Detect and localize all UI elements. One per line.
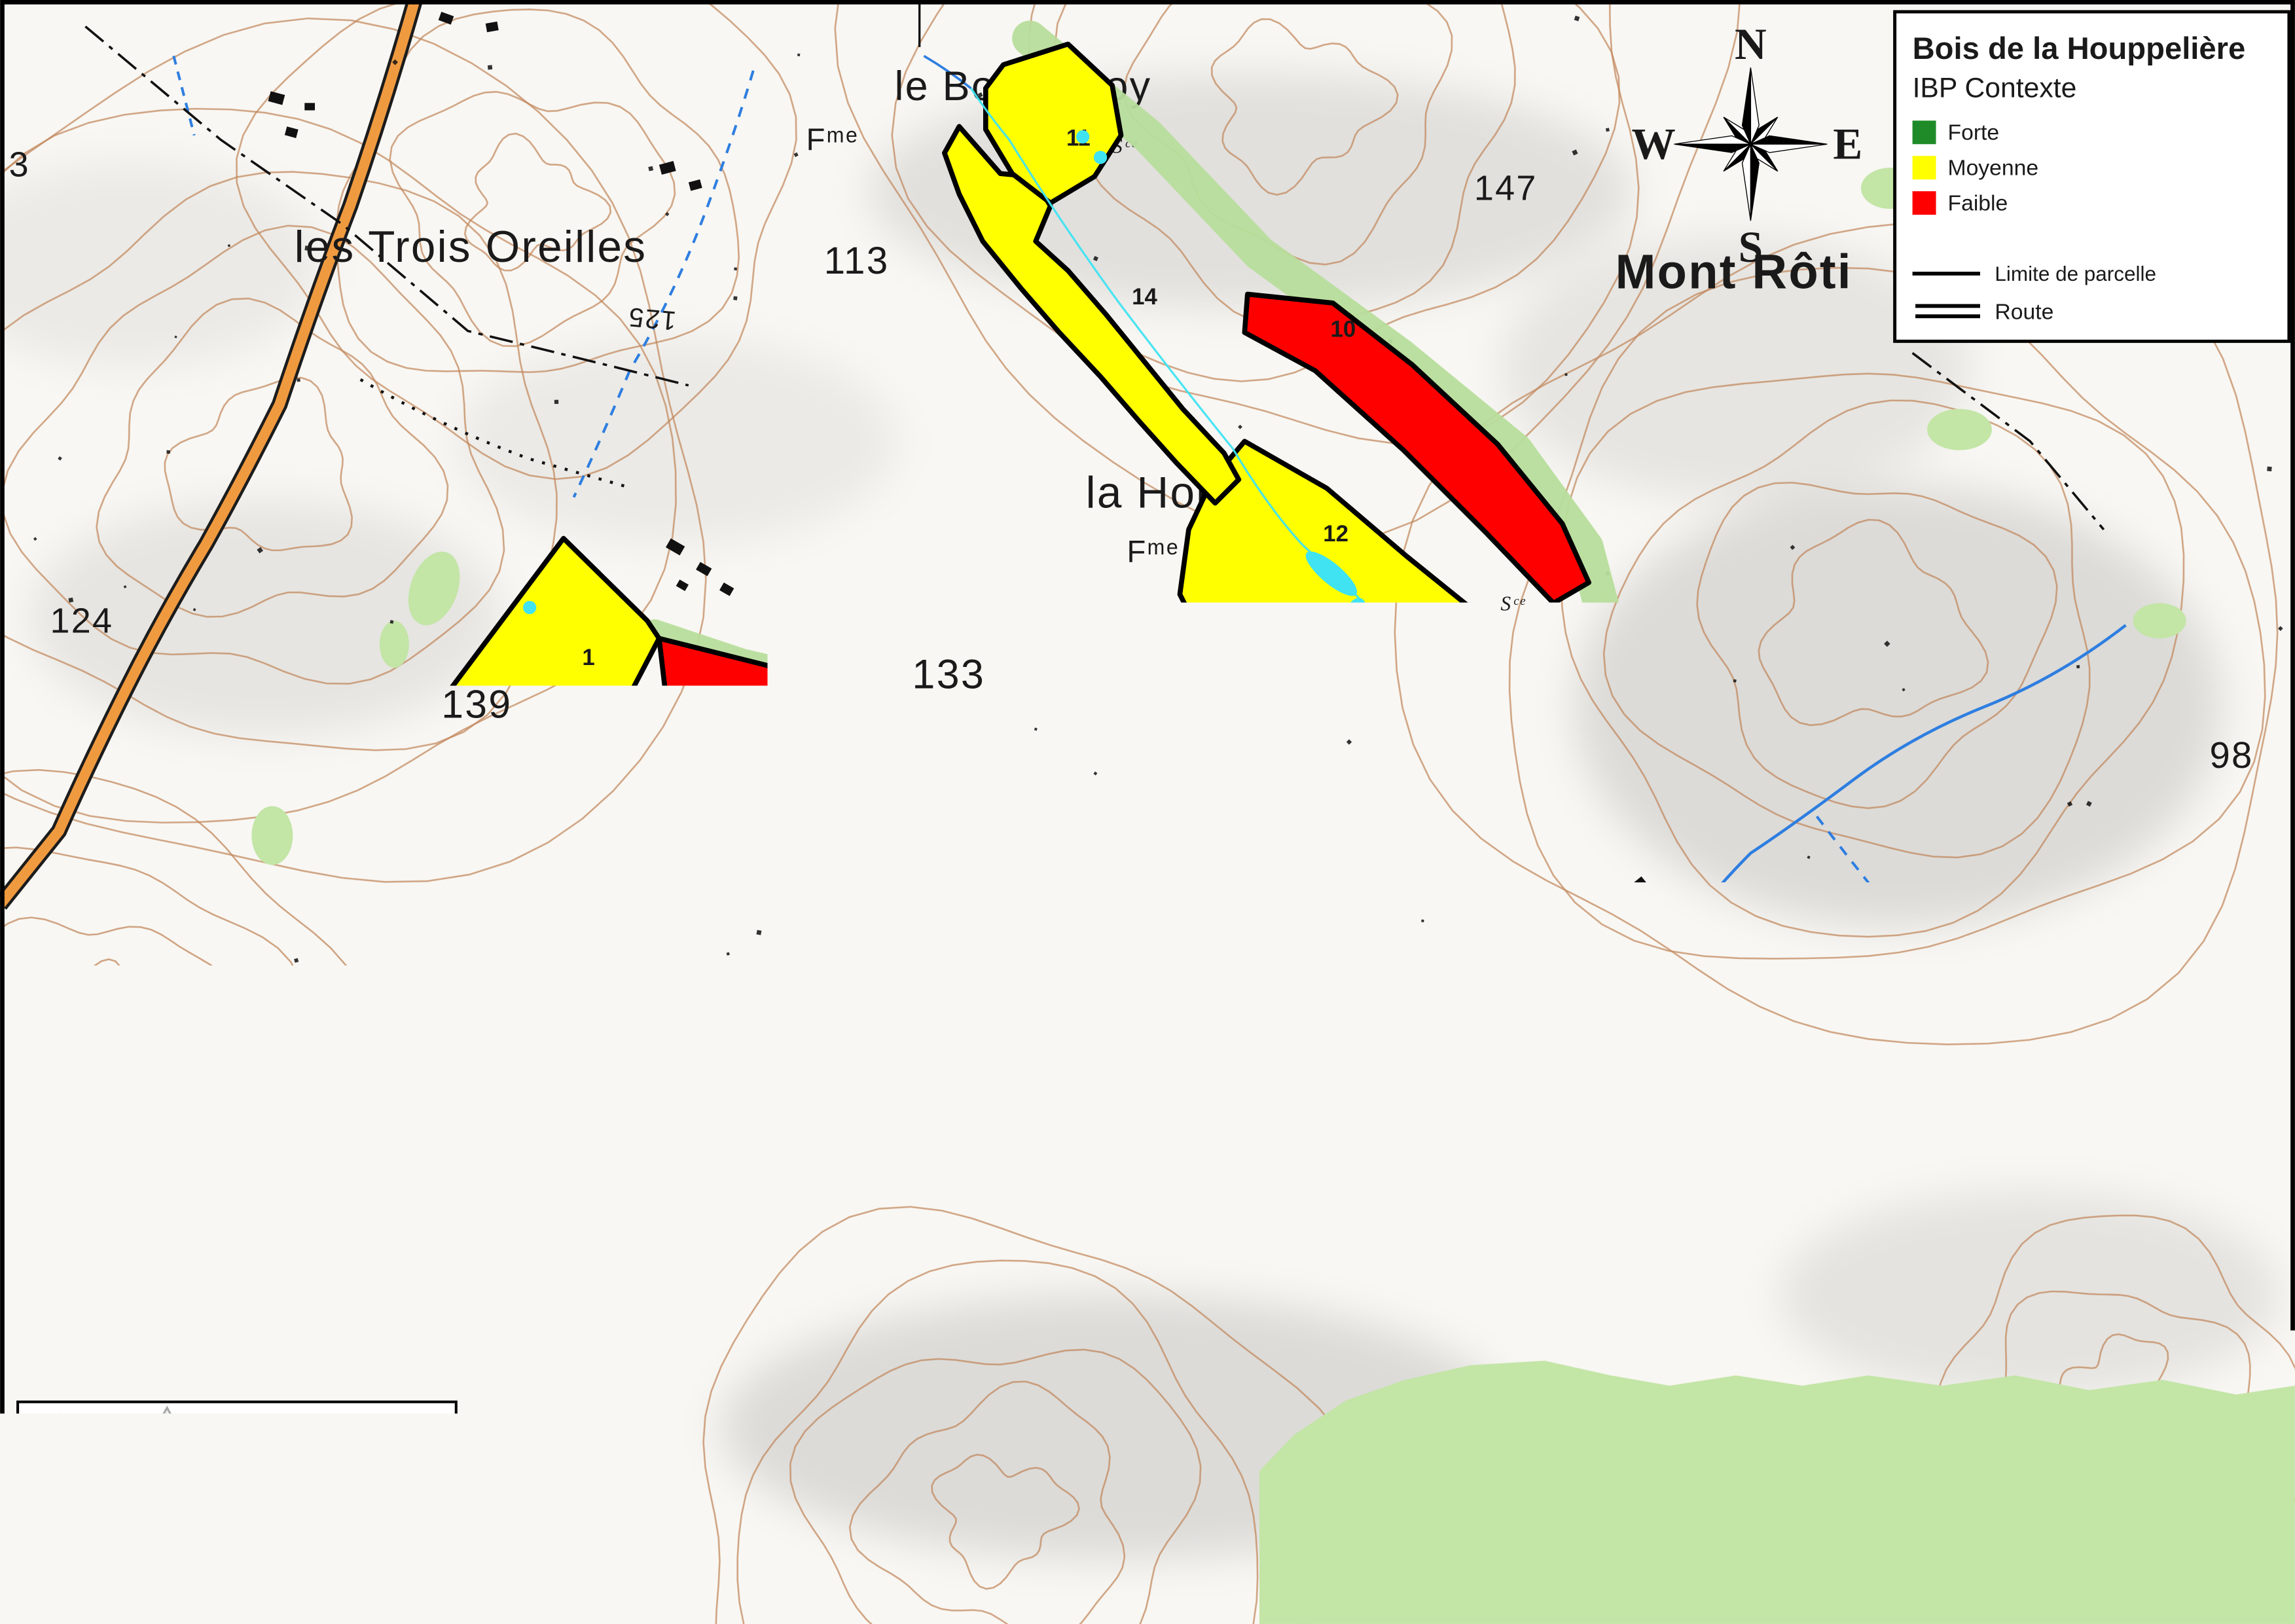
scale-bar-segment (1636, 1489, 1701, 1507)
scale-ratio: Échelle : 1:11 150 (1746, 1577, 2049, 1619)
parcel-label-17: 17 (1367, 1077, 1393, 1102)
legend-label-moyenne: Moyenne (1948, 155, 2039, 180)
legend-swatch-faible (1913, 191, 1936, 215)
parcel-label-34: 34 (1314, 765, 1340, 791)
topo-dot (648, 166, 653, 171)
parcel-label-6: 6 (1314, 1217, 1327, 1242)
place-label: les Trois Oreilles (295, 223, 647, 272)
parcel-label-33: 33 (1123, 802, 1149, 827)
parcel-label-37: 37 (692, 1071, 717, 1096)
building (278, 1333, 293, 1343)
building (221, 1268, 232, 1276)
place-label: 106 (1630, 1264, 1695, 1305)
place-label: Sᶜᵉ (1879, 935, 1904, 958)
building (88, 1230, 103, 1240)
legend-title: Bois de la Houppelière (1913, 31, 2246, 66)
parcel-label-16: 16 (774, 874, 800, 899)
topo-dot (1606, 128, 1610, 132)
building (185, 1244, 200, 1256)
scale-bar-segment (1636, 1507, 1701, 1526)
parcel-label-29: 29 (979, 693, 1004, 719)
parcel-label-20: 20 (752, 684, 778, 710)
topo-dot (488, 65, 492, 69)
parcel-label-5: 5 (1294, 1182, 1307, 1207)
scale-bar-segment (1898, 1507, 2159, 1526)
parcel-label-36: 36 (1279, 915, 1305, 941)
place-label: 3 (9, 145, 30, 185)
building (103, 1324, 115, 1333)
topo-dot (554, 400, 558, 404)
place-label: Fᵐᵉ (806, 122, 859, 157)
legend-swatch-forte (1913, 120, 1936, 144)
topo-dot (297, 378, 300, 382)
place-label: Fᵐᵉ (1127, 534, 1180, 569)
parcel-label-8: 8 (1344, 1259, 1356, 1285)
place-label: 113 (824, 240, 890, 282)
scale-bar-segment (1898, 1489, 2159, 1507)
small-pond (476, 842, 489, 856)
parcel-label-14: 14 (1132, 284, 1157, 310)
legend-subtitle: IBP Contexte (1913, 72, 2077, 103)
place-label: 108 (827, 1390, 892, 1432)
topo-dot (1231, 1425, 1234, 1428)
parcel-label-1: 1 (582, 645, 594, 670)
small-pond (1076, 130, 1089, 143)
legend-label-route: Route (1995, 300, 2053, 325)
scale-left-value: 0 (1627, 1438, 1650, 1483)
scale-unit: kilomètres (1811, 1534, 1985, 1577)
scale-bar-segment (1701, 1489, 1767, 1507)
place-label: Mont Rôti (1616, 244, 1852, 298)
compass-n: N (1735, 20, 1767, 69)
map-canvas: les Trois Oreillesle Bois LeroyFᵐᵉ113la … (0, 0, 2295, 1624)
parcel-label-2: 2 (611, 923, 624, 948)
parcel-label-19: 19 (805, 805, 831, 831)
credits-edition: Edition : Mai 2013 (33, 1545, 204, 1568)
building (304, 103, 315, 110)
parcel-label-30: 30 (1320, 672, 1346, 698)
scale-bar-segment (1767, 1507, 1898, 1526)
legend-label-faible: Faible (1948, 190, 2008, 215)
building (1589, 1277, 1600, 1286)
legend-swatch-moyenne (1913, 156, 1936, 179)
topo-dot (2076, 665, 2080, 669)
topo-dot (734, 267, 737, 270)
parcel-label-4: 4 (1074, 1157, 1087, 1182)
small-pond (587, 739, 600, 752)
place-label: 123 (1295, 1559, 1360, 1600)
parcel-label-32: 32 (1035, 868, 1060, 893)
small-pond (905, 819, 918, 832)
place-label: 124 (50, 601, 114, 640)
building (191, 1315, 203, 1324)
topo-dot (1392, 1411, 1395, 1413)
credits-school: Collège et Lycée St. Joseph (206, 1478, 417, 1499)
topo-dot (2267, 467, 2271, 471)
compass-w: W (1631, 120, 1675, 169)
topo-dot (632, 1482, 635, 1485)
scale-bar-segment (1767, 1489, 1898, 1507)
parcel-label-18: 18 (664, 783, 689, 808)
parcel-label-10: 10 (1331, 317, 1356, 342)
credits-org: Mesnières-en-Bray (206, 1447, 408, 1474)
small-pond (1094, 151, 1107, 164)
parcel-label-21: 21 (1464, 850, 1490, 876)
building (941, 1496, 957, 1508)
credits-dept: Enseignement Horticole et Forestier (206, 1511, 489, 1532)
scale-bar (1636, 1489, 2159, 1526)
place-label: Sᶜᵉ (1748, 997, 1773, 1020)
parcel-label-27: 27 (952, 787, 978, 813)
place-label: 105 (1939, 979, 2004, 1020)
place-label: 147 (1474, 169, 1538, 208)
legend-label-forte: Forte (1948, 120, 2000, 145)
credits-box: Mesnières-en-Bray Collège et Lycée St. J… (18, 1402, 489, 1621)
credits-basis: sur les travaux de Fabien Levasseur (33, 1598, 376, 1621)
building (353, 1326, 366, 1336)
map-sheet: les Trois Oreillesle Bois LeroyFᵐᵉ113la … (0, 0, 2295, 1624)
parcel-label-25: 25 (901, 748, 926, 773)
topo-dot (733, 296, 737, 300)
place-label: Sᶜᵉ (1500, 592, 1526, 615)
place-label: 125 (626, 302, 678, 336)
parcel-label-12: 12 (1323, 521, 1348, 547)
parcel-label-31: 31 (1214, 783, 1240, 808)
place-label: 98 (2210, 734, 2254, 776)
scale-box: 0 0,5000 kilomètres Échelle : 1:11 150 (1515, 1415, 2224, 1619)
parcel-label-26: 26 (1017, 724, 1043, 749)
place-label: Fᵐᵉ (1727, 941, 1777, 975)
parcel-label-3: 3 (818, 1087, 830, 1113)
legend: Bois de la Houppelière IBP Contexte Fort… (1895, 12, 2289, 341)
compass-s: S (1739, 223, 1763, 272)
scale-bar-segment (1701, 1507, 1767, 1526)
small-pond (751, 988, 764, 1001)
parcel-label-35: 35 (1179, 907, 1204, 932)
place-label: 115 (2207, 1146, 2269, 1187)
legend-label-limite: Limite de parcelle (1995, 262, 2156, 285)
parcel-label-28: 28 (958, 880, 984, 905)
compass-e: E (1833, 120, 1862, 169)
parcel-label-22: 22 (1362, 974, 1387, 1000)
parcel-label-7: 7 (1326, 1239, 1339, 1265)
small-pond (523, 601, 536, 614)
parcel-label-24: 24 (1120, 1009, 1146, 1035)
scale-right-value: 0,5000 (2044, 1438, 2166, 1483)
parcel-label-9: 9 (1347, 1333, 1360, 1359)
small-pond (410, 858, 423, 871)
topo-dot (2060, 1278, 2063, 1281)
topo-dot (167, 450, 170, 454)
credits-author: Réalisé par Nicolas Bourbigot (33, 1571, 314, 1595)
parcel-label-15: 15 (1149, 698, 1175, 723)
parcel-label-13: 13 (1494, 710, 1519, 735)
place-label: la Houppelière (253, 1265, 577, 1317)
